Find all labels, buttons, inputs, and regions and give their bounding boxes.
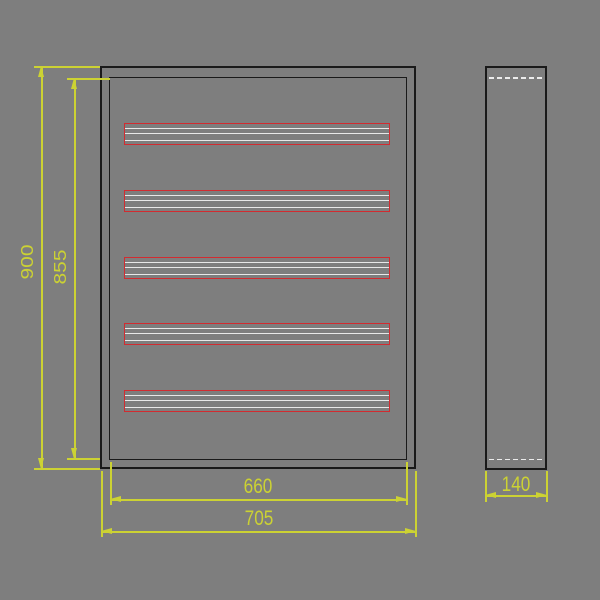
din-rail-3	[124, 257, 390, 279]
dim-705-label: 705	[226, 508, 292, 530]
rail-edge-line	[125, 128, 389, 129]
dim-705-arrow-right	[405, 528, 416, 534]
dim-855-label: 855	[52, 227, 70, 307]
rail-edge-line	[125, 274, 389, 275]
din-rail-1	[124, 123, 390, 145]
rail-edge-line	[125, 207, 389, 208]
rail-edge-line	[125, 328, 389, 329]
dim-900-arrow-up	[38, 66, 44, 77]
dim-900-label: 900	[19, 222, 37, 302]
dim-660-arrow-right	[396, 496, 407, 502]
rail-edge-line	[125, 400, 389, 401]
side-view-hidden-line-bottom	[489, 459, 543, 461]
rail-edge-line	[125, 340, 389, 341]
dim-660-arrow-left	[110, 496, 121, 502]
rail-edge-line	[125, 140, 389, 141]
rail-edge-line	[125, 333, 389, 334]
din-rail-5	[124, 390, 390, 412]
dim-855-arrow-up	[71, 78, 77, 89]
rail-edge-line	[125, 395, 389, 396]
dim-855-arrow-down	[71, 448, 77, 459]
dim-705-line	[101, 531, 416, 533]
dim-660-label: 660	[225, 476, 291, 498]
dim-855-line	[74, 78, 76, 459]
rail-edge-line	[125, 267, 389, 268]
dim-660-line	[110, 499, 407, 501]
rail-edge-line	[125, 407, 389, 408]
rail-edge-line	[125, 195, 389, 196]
dim-900-arrow-down	[38, 458, 44, 469]
dim-900-line	[41, 66, 43, 469]
dim-705-arrow-left	[101, 528, 112, 534]
dim-140-label: 140	[483, 474, 549, 496]
din-rail-2	[124, 190, 390, 212]
rail-edge-line	[125, 262, 389, 263]
rail-edge-line	[125, 133, 389, 134]
rail-edge-line	[125, 200, 389, 201]
technical-drawing: 900 855 660 705 140	[0, 0, 600, 600]
side-view-outline	[485, 66, 547, 470]
side-view-hidden-line-top	[489, 77, 543, 79]
din-rail-4	[124, 323, 390, 345]
